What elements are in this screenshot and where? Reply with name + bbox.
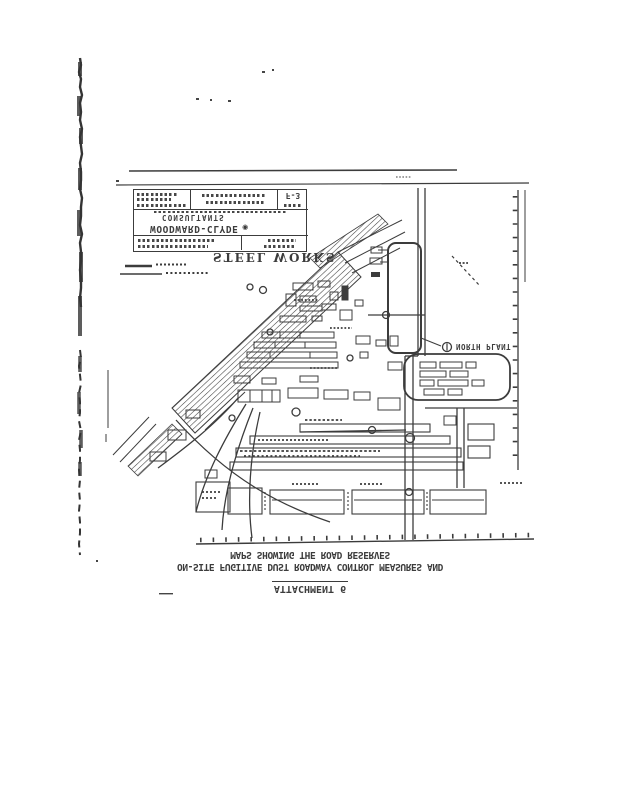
company-name: WOODWARD-CLYDE◉ bbox=[150, 222, 249, 234]
title-block: F-3 CONSULTANTS WOODWARD-CLYDE◉ bbox=[133, 189, 307, 252]
illegible-text bbox=[137, 193, 177, 196]
attachment-number-text: ATTACHMENT 6 bbox=[272, 581, 348, 594]
illegible-text bbox=[264, 245, 296, 248]
illegible-text bbox=[138, 245, 208, 248]
title-block-rule bbox=[277, 190, 278, 209]
title-block-rule bbox=[134, 235, 308, 236]
north-plant-label: NORTH PLANT bbox=[456, 342, 511, 351]
illegible-text bbox=[137, 204, 187, 207]
title-block-rule bbox=[241, 235, 242, 250]
attachment-number: ATTACHMENT 6 bbox=[160, 581, 460, 594]
title-block-rule bbox=[190, 190, 191, 209]
bottom-building-bars bbox=[196, 424, 494, 514]
photocopy-specks bbox=[96, 69, 274, 594]
illegible-text bbox=[268, 239, 296, 242]
caption-title: ON-SITE FUGITIVE DUST ROADWAY CONTROL ME… bbox=[160, 561, 460, 572]
ticked-boundary-line bbox=[196, 535, 534, 544]
binding-edge-marks bbox=[79, 58, 82, 555]
consultants-label: CONSULTANTS bbox=[162, 213, 225, 222]
illegible-text bbox=[138, 239, 216, 242]
illegible-text bbox=[202, 194, 266, 197]
steel-works-label: STEEL WORKS bbox=[213, 250, 313, 264]
company-logo-icon: ◉ bbox=[238, 222, 248, 232]
company-name-text: WOODWARD-CLYDE bbox=[150, 223, 238, 234]
caption-subtitle: MAPS SHOWING THE ROAD RESERVES bbox=[160, 549, 460, 560]
illegible-text bbox=[284, 204, 302, 207]
north-plant-enclosure bbox=[404, 343, 510, 401]
site-plan-artwork bbox=[0, 0, 618, 800]
scanned-document-page: STEEL WORKS NORTH PLANT F-3 CONSULTANTS … bbox=[0, 0, 618, 800]
illegible-text bbox=[206, 201, 266, 204]
legend-marks bbox=[120, 265, 208, 275]
figure-frame-lines bbox=[116, 170, 529, 185]
sheet-number: F-3 bbox=[280, 191, 306, 200]
illegible-text bbox=[137, 198, 171, 201]
